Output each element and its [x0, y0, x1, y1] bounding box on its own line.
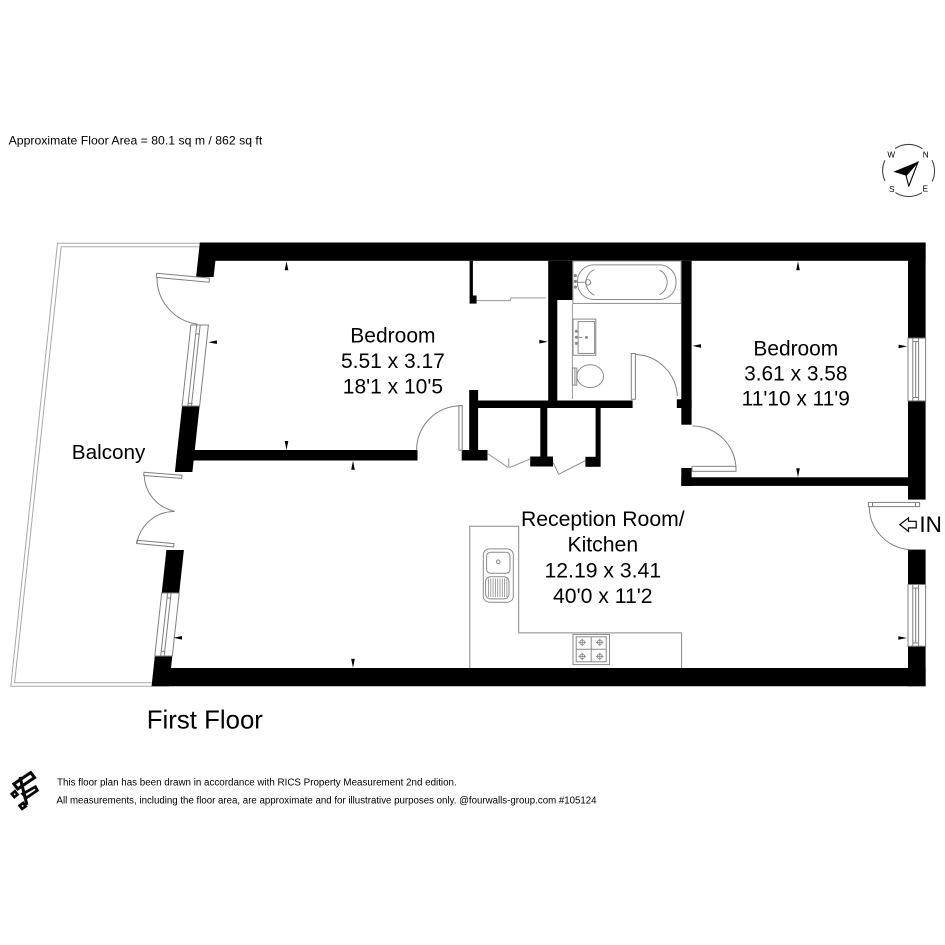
svg-text:40'0 x 11'2: 40'0 x 11'2 — [553, 585, 653, 608]
svg-text:Balcony: Balcony — [72, 441, 146, 464]
svg-text:Reception Room/: Reception Room/ — [521, 508, 685, 531]
svg-text:5.51 x 3.17: 5.51 x 3.17 — [341, 350, 445, 373]
svg-text:12.19 x 3.41: 12.19 x 3.41 — [544, 559, 661, 582]
svg-text:All measurements, including th: All measurements, including the floor ar… — [57, 796, 598, 807]
svg-text:3.61 x 3.58: 3.61 x 3.58 — [744, 363, 847, 386]
svg-text:E: E — [923, 185, 929, 194]
svg-text:Kitchen: Kitchen — [567, 534, 638, 557]
svg-text:Bedroom: Bedroom — [753, 337, 838, 360]
svg-text:11'10 x 11'9: 11'10 x 11'9 — [742, 388, 850, 411]
svg-text:IN: IN — [919, 512, 942, 537]
svg-text:N: N — [923, 150, 929, 159]
svg-text:S: S — [889, 185, 895, 194]
svg-text:This floor plan has been drawn: This floor plan has been drawn in accord… — [57, 778, 457, 789]
svg-text:W: W — [887, 150, 895, 159]
svg-text:18'1 x 10'5: 18'1 x 10'5 — [343, 375, 443, 398]
svg-text:First Floor: First Floor — [147, 707, 263, 735]
svg-text:Approximate Floor Area = 80.1: Approximate Floor Area = 80.1 sq m / 862… — [9, 133, 263, 147]
svg-text:Bedroom: Bedroom — [350, 324, 435, 347]
